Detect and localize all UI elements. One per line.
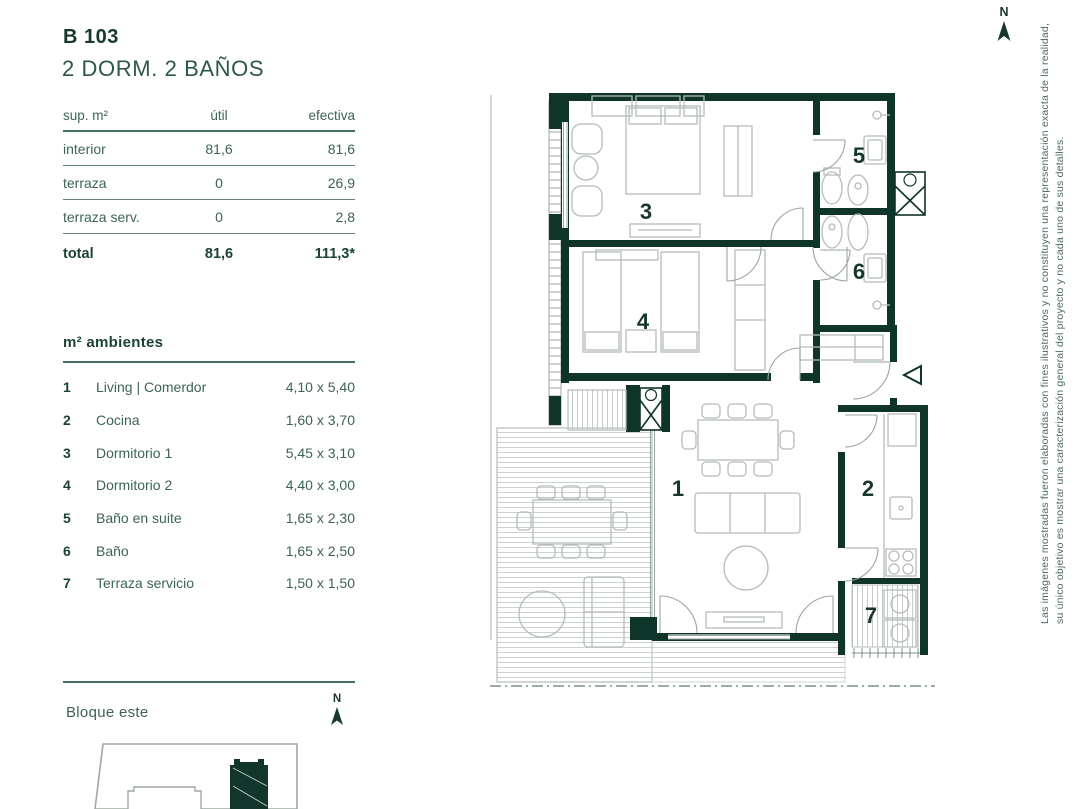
north-label: N (333, 693, 341, 705)
table-row-total: total 81,6 111,3* (63, 234, 355, 274)
ambiente-row: 4 Dormitorio 2 4,40 x 3,00 (63, 469, 355, 502)
room-name: Living | Comerdor (96, 379, 286, 395)
room-dims: 1,60 x 3,70 (286, 412, 355, 428)
room-dims: 1,50 x 1,50 (286, 575, 355, 591)
surface-table: sup. m² útil efectiva interior 81,6 81,6… (63, 101, 355, 274)
room-name: Baño en suite (96, 510, 286, 526)
row-efectiva: 81,6 (267, 141, 355, 157)
room-name: Terraza servicio (96, 575, 286, 591)
ambientes-rule (63, 361, 355, 363)
room-dims: 1,65 x 2,50 (286, 543, 355, 559)
room-number: 4 (63, 477, 96, 493)
row-label: terraza serv. (63, 209, 171, 225)
ambiente-row: 6 Baño 1,65 x 2,50 (63, 534, 355, 567)
room-name: Cocina (96, 412, 286, 428)
total-label: total (63, 246, 171, 262)
site-plan (92, 736, 304, 809)
room-number: 2 (63, 412, 96, 428)
ambiente-row: 1 Living | Comerdor 4,10 x 5,40 (63, 371, 355, 404)
room-labels: 1 2 3 4 5 6 7 (637, 143, 877, 628)
row-util: 0 (171, 209, 267, 225)
row-util: 81,6 (171, 141, 267, 157)
fence-ticks (852, 648, 920, 658)
entry-marker (904, 366, 921, 384)
ambiente-row: 3 Dormitorio 1 5,45 x 3,10 (63, 436, 355, 469)
unit-code: B 103 (63, 26, 119, 49)
terrace-deck-south (652, 640, 845, 682)
room-label-1: 1 (672, 476, 684, 501)
row-efectiva: 2,8 (267, 209, 355, 225)
building-outline (128, 787, 201, 809)
total-efectiva: 111,3* (267, 246, 355, 262)
row-label: interior (63, 141, 171, 157)
stair-hatch (568, 390, 626, 430)
wall-stub (549, 396, 561, 425)
floorplan: 1 2 3 4 5 6 7 (487, 85, 937, 695)
table-row-terraza: terraza 0 26,9 (63, 166, 355, 200)
room-label-5: 5 (853, 143, 865, 168)
footer-divider (63, 681, 355, 683)
disclaimer-line-1: Las imágenes mostradas fueron elaboradas… (1038, 4, 1053, 624)
header-util: útil (171, 108, 267, 123)
floorplan-page: B 103 2 DORM. 2 BAÑOS sup. m² útil efect… (0, 0, 1080, 809)
north-arrow-icon (998, 21, 1011, 41)
room-dims: 5,45 x 3,10 (286, 445, 355, 461)
header-sup: sup. m² (63, 108, 171, 123)
room-label-4: 4 (637, 309, 650, 334)
compass-top: N (987, 3, 1021, 53)
table-row-terraza-serv: terraza serv. 0 2,8 (63, 200, 355, 234)
ambientes-list: 1 Living | Comerdor 4,10 x 5,40 2 Cocina… (63, 371, 355, 600)
wall-stub (549, 214, 561, 240)
wall-stub (549, 101, 561, 129)
room-number: 7 (63, 575, 96, 591)
ambiente-row: 7 Terraza servicio 1,50 x 1,50 (63, 567, 355, 600)
terrace-deck (497, 428, 652, 682)
north-label: N (999, 5, 1008, 19)
room-label-7: 7 (865, 603, 877, 628)
room-number: 6 (63, 543, 96, 559)
header-efectiva: efectiva (267, 108, 355, 123)
room-label-2: 2 (862, 476, 874, 501)
room-number: 3 (63, 445, 96, 461)
ambiente-row: 5 Baño en suite 1,65 x 2,30 (63, 502, 355, 535)
room-name: Dormitorio 2 (96, 477, 286, 493)
disclaimer: Las imágenes mostradas fueron elaboradas… (1038, 4, 1067, 624)
ambiente-row: 2 Cocina 1,60 x 3,70 (63, 404, 355, 437)
row-util: 0 (171, 175, 267, 191)
room-label-6: 6 (853, 259, 865, 284)
compass-bottom: N (322, 689, 352, 735)
room-dims: 4,40 x 3,00 (286, 477, 355, 493)
room-name: Dormitorio 1 (96, 445, 286, 461)
room-dims: 4,10 x 5,40 (286, 379, 355, 395)
north-arrow-icon (331, 707, 343, 725)
table-row-interior: interior 81,6 81,6 (63, 132, 355, 166)
surface-table-header: sup. m² útil efectiva (63, 101, 355, 132)
room-number: 1 (63, 379, 96, 395)
room-name: Baño (96, 543, 286, 559)
unit-type: 2 DORM. 2 BAÑOS (62, 56, 264, 82)
ambientes-title: m² ambientes (63, 334, 163, 351)
block-label: Bloque este (66, 704, 149, 721)
disclaimer-line-2: su único objetivo es mostrar una caracte… (1053, 4, 1068, 624)
total-util: 81,6 (171, 246, 267, 262)
row-label: terraza (63, 175, 171, 191)
room-label-3: 3 (640, 199, 652, 224)
railing (549, 101, 561, 425)
row-efectiva: 26,9 (267, 175, 355, 191)
room-dims: 1,65 x 2,30 (286, 510, 355, 526)
room-number: 5 (63, 510, 96, 526)
